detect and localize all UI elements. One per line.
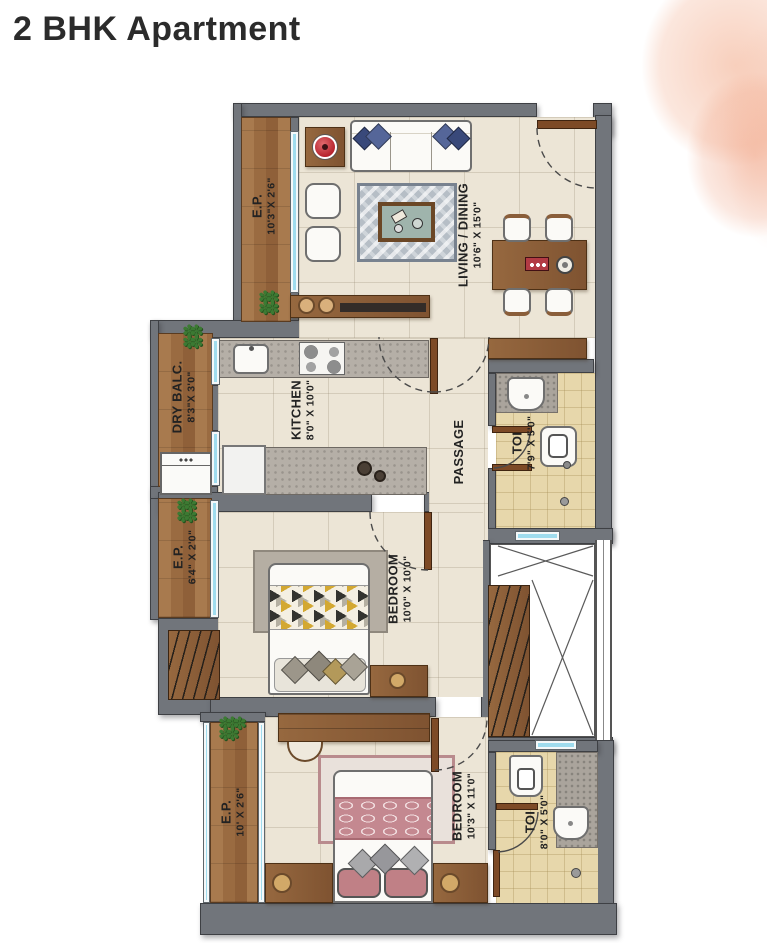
room-label-toilet-1: TOI 7'9" X 5'0" xyxy=(509,416,538,470)
sofa-divider-2 xyxy=(431,132,432,170)
wall-duct-right-double xyxy=(595,540,612,740)
wall-right-upper xyxy=(595,115,612,540)
dining-plate-center xyxy=(562,262,568,268)
wall-bottom xyxy=(200,903,617,935)
tv-unit xyxy=(340,303,426,312)
ep-mid-window xyxy=(210,500,219,618)
bedroom2-desk xyxy=(278,713,430,742)
red-lamp-center xyxy=(322,144,328,150)
plant-ep-bottom: ✽✽✽✽✽ xyxy=(218,718,240,740)
watercolor-splash-3 xyxy=(700,0,767,300)
toilet2-basin-drain xyxy=(568,821,573,826)
dining-chair-2 xyxy=(545,214,573,242)
ep-bottom-window-right xyxy=(258,722,265,903)
refrigerator xyxy=(222,445,266,495)
entrance-door-leaf xyxy=(537,120,597,129)
wall-top xyxy=(233,103,537,117)
room-label-bedroom-1: BEDROOM 10'0" X 10'0" xyxy=(385,554,414,624)
toilet1-shower-head xyxy=(560,497,569,506)
dining-chair-3 xyxy=(503,288,531,316)
bed2-pillow-2 xyxy=(384,868,428,898)
room-label-kitchen: KITCHEN 8'0" X 10'0" xyxy=(288,380,317,441)
wall-toilet2-left xyxy=(488,752,496,850)
kitchen-vessel-1 xyxy=(357,461,372,476)
dining-tray xyxy=(525,257,549,271)
ottoman-1 xyxy=(305,183,341,219)
toilet1-shower-mixer xyxy=(563,461,571,469)
room-label-living-dining: LIVING / DINING 10'6" X 15'0" xyxy=(455,183,484,287)
room-label-bedroom-2: BEDROOM 10'3" X 11'0" xyxy=(449,771,478,841)
drybalc-window-b xyxy=(211,431,220,486)
plant-living-corner: ✽✽✽✽ xyxy=(258,292,273,314)
toilet2-door-leaf xyxy=(493,850,500,897)
toilet1-basin-drain xyxy=(524,394,529,399)
bedroom1-door-leaf xyxy=(424,512,432,570)
dining-chair-4 xyxy=(545,288,573,316)
bedroom1-wardrobe xyxy=(168,630,220,700)
kitchen-sink-tap xyxy=(249,346,254,351)
bed2-blanket xyxy=(335,797,431,840)
watercolor-splash xyxy=(610,0,767,200)
room-label-ep-bottom: E.P. 10' X 2'6" xyxy=(218,787,247,836)
room-label-dry-balc: DRY BALC. 8'3"X 3'0" xyxy=(169,361,198,434)
ottoman-2 xyxy=(305,226,341,262)
toilet2-window xyxy=(535,740,577,750)
toilet1-window xyxy=(515,531,560,541)
console-vase-2 xyxy=(318,297,335,314)
drybalc-window-a xyxy=(211,338,220,385)
wall-toilet1-left-b xyxy=(488,468,496,532)
ep-top-window xyxy=(290,131,299,293)
wall-toilet1-left-a xyxy=(488,373,496,426)
duct-wardrobe xyxy=(488,585,530,737)
room-label-ep-top: E.P. 10'3"X 2'6" xyxy=(249,177,278,234)
bed2-side-lamp-right xyxy=(440,873,460,893)
toilet2-wc-seat xyxy=(517,768,535,790)
washing-machine xyxy=(160,452,212,495)
toilet2-shower-head xyxy=(571,868,581,878)
coffee-table-plate xyxy=(394,224,403,233)
gas-stove xyxy=(299,342,345,375)
floor-plan-page: 2 BHK Apartment xyxy=(0,0,767,943)
dining-chair-1 xyxy=(503,214,531,242)
bed2-side-lamp-left xyxy=(272,873,292,893)
coffee-table xyxy=(378,202,435,242)
wall-toilet1-top xyxy=(488,359,594,373)
watercolor-splash-2 xyxy=(660,40,767,270)
coffee-table-plate-2 xyxy=(412,218,423,229)
room-label-ep-mid: E.P. 6'4" X 2'0" xyxy=(170,530,199,584)
plant-dry-balcony: ✽✽✽✽ xyxy=(182,326,197,348)
bedroom2-door-leaf xyxy=(431,718,439,772)
room-label-toilet-2: TOI 8'0" X 5'0" xyxy=(522,795,551,849)
kitchen-door-leaf xyxy=(430,338,438,394)
toilet1-wc-seat xyxy=(548,434,568,458)
bed1-side-lamp xyxy=(389,672,406,689)
bed1-blanket xyxy=(270,585,368,630)
kitchen-vessel-2 xyxy=(374,470,386,482)
wall-right-lower xyxy=(597,740,614,905)
room-label-passage: PASSAGE xyxy=(451,420,467,485)
ep-bottom-window-left xyxy=(203,722,210,903)
console-vase-1 xyxy=(298,297,315,314)
plant-ep-mid: ✽✽✽✽ xyxy=(176,500,191,522)
page-title: 2 BHK Apartment xyxy=(13,10,301,49)
toilet1-cabinet-shelf xyxy=(488,338,587,359)
